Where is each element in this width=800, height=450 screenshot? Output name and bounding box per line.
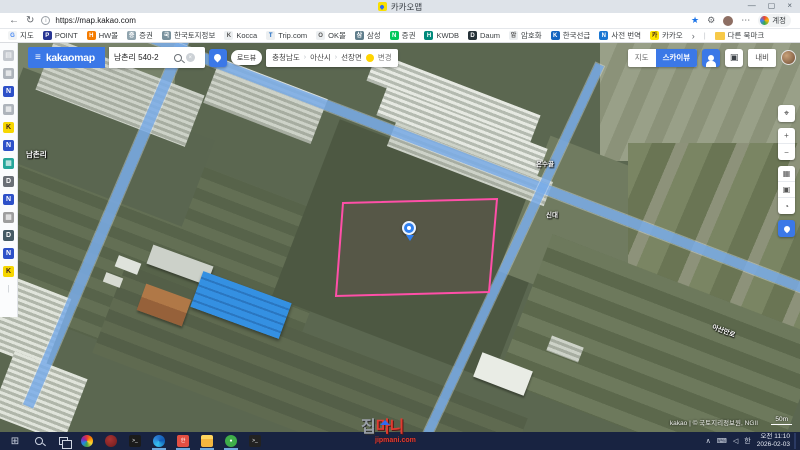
side-favicon[interactable]: K xyxy=(3,122,14,133)
bookmark-favicon: N xyxy=(390,31,399,40)
navi-button[interactable]: 내비 xyxy=(748,49,776,67)
kakaomap-favicon xyxy=(378,2,387,11)
bookmark-label: OK몰 xyxy=(328,30,346,41)
zoom-control: + − xyxy=(778,128,795,160)
clear-search-icon[interactable]: × xyxy=(186,53,195,62)
bookmark-item[interactable]: 카카카오 xyxy=(650,30,683,41)
taskbar-app-green[interactable]: ● xyxy=(220,432,242,450)
logo-text: kakaomap xyxy=(46,52,95,64)
theme-button[interactable]: ◔ xyxy=(778,198,795,214)
address-bar: ← ↻ i https://map.kakao.com ★ ⚙ ⋯ 계정 xyxy=(0,13,800,29)
bookmark-label: HW몰 xyxy=(99,30,118,41)
map-tool-column: ⌖ + − ▦ ▣ ◔ xyxy=(778,105,795,237)
bookmark-label: 사전 번역 xyxy=(611,30,641,41)
pin-icon xyxy=(782,224,790,232)
bookmark-label: 한국선급 xyxy=(563,30,591,41)
toggle-map[interactable]: 지도 xyxy=(628,49,656,67)
extensions-icon[interactable]: ⚙ xyxy=(707,15,715,26)
back-icon[interactable]: ← xyxy=(9,16,19,26)
bookmark-item[interactable]: TTrip.com xyxy=(266,31,307,40)
current-location-button[interactable]: ⌖ xyxy=(778,105,795,122)
zoom-in-button[interactable]: + xyxy=(778,128,795,144)
side-favicon[interactable]: N xyxy=(3,248,14,259)
task-view-button[interactable] xyxy=(52,432,74,450)
bookmark-favicon: N xyxy=(599,31,608,40)
bookmark-item[interactable]: N사전 번역 xyxy=(599,30,641,41)
other-bookmarks-label: 다른 북마크 xyxy=(728,30,765,41)
bookmark-label: 한국토지정보 xyxy=(174,30,215,41)
chevron-right-icon: › xyxy=(304,54,306,61)
bookmark-label: Daum xyxy=(480,31,500,40)
side-favicon[interactable]: ▦ xyxy=(3,68,14,79)
clock-time: 오전 11:10 xyxy=(757,433,790,441)
bookmark-favicon: T xyxy=(266,31,275,40)
taskbar-app-edge[interactable] xyxy=(148,432,170,450)
side-favicon[interactable]: ▦ xyxy=(3,158,14,169)
profile-chip-icon xyxy=(760,16,769,25)
bookmark-label: Trip.com xyxy=(278,31,307,40)
favorites-button[interactable]: ▣ xyxy=(725,49,743,67)
village-label: 남촌리 xyxy=(26,149,47,160)
taskbar-app-explorer[interactable] xyxy=(196,432,218,450)
bookmark-label: KWDB xyxy=(436,31,459,40)
breadcrumb-action[interactable]: 변경 xyxy=(378,52,392,63)
breadcrumb-part[interactable]: 충청남도 xyxy=(272,52,300,63)
taskbar-clock[interactable]: 오전 11:10 2026-02-03 xyxy=(757,433,796,449)
breadcrumb-part[interactable]: 선장면 xyxy=(341,52,362,63)
bookmark-favicon: K xyxy=(551,31,560,40)
bookmark-favicon: K xyxy=(224,31,233,40)
bookmark-favicon: G xyxy=(8,31,17,40)
profile-chip-label: 계정 xyxy=(772,15,786,26)
side-favicon[interactable]: D xyxy=(3,230,14,241)
bookmark-label: 증권 xyxy=(139,30,153,41)
marker-toggle-button[interactable] xyxy=(778,220,795,237)
jipmani-watermark: 집 마니 jipmani.com xyxy=(361,420,416,444)
kakaomap-logo[interactable]: ≡ kakaomap xyxy=(28,47,105,68)
close-button[interactable]: × xyxy=(787,1,792,10)
bookmarks-overflow-icon[interactable]: › xyxy=(692,31,695,41)
url-box[interactable]: i https://map.kakao.com xyxy=(41,16,684,25)
other-bookmarks[interactable]: 다른 북마크 xyxy=(715,30,765,41)
browser-titlebar: 카카오맵 — ▢ × xyxy=(0,0,800,13)
pin-icon xyxy=(213,53,223,63)
bookmark-favicon: H xyxy=(87,31,96,40)
watermark-site: jipmani.com xyxy=(375,437,416,444)
tray-speaker-icon[interactable]: ◁ xyxy=(733,437,738,445)
taskbar-app-terminal2[interactable]: >_ xyxy=(244,432,266,450)
side-favicon[interactable]: N xyxy=(3,194,14,205)
location-pin[interactable] xyxy=(402,221,416,235)
side-favicon[interactable]: N xyxy=(3,140,14,151)
url-text: https://map.kakao.com xyxy=(55,16,135,25)
refresh-icon[interactable]: ↻ xyxy=(26,16,34,26)
map-scale: 50m xyxy=(771,416,792,425)
side-favicon[interactable]: D xyxy=(3,176,14,187)
bookmark-favicon: 국 xyxy=(162,31,171,40)
user-avatar[interactable] xyxy=(781,50,796,65)
side-favicon[interactable]: K xyxy=(3,266,14,277)
toggle-skyview[interactable]: 스카이뷰 xyxy=(656,49,698,67)
bookmark-star-icon[interactable]: ★ xyxy=(691,15,699,26)
search-input[interactable] xyxy=(114,53,170,62)
pegman-icon xyxy=(708,55,714,61)
bookmark-item[interactable]: N증권 xyxy=(390,30,416,41)
bookmark-favicon: 암 xyxy=(509,31,518,40)
breadcrumb-part[interactable]: 아산시 xyxy=(310,52,331,63)
taskbar-app-hangul[interactable]: 한 xyxy=(172,432,194,450)
site-info-icon[interactable]: i xyxy=(41,16,50,25)
bookmark-item[interactable]: 암암호화 xyxy=(509,30,542,41)
bookmark-label: Kocca xyxy=(236,31,257,40)
bookmark-favicon: D xyxy=(468,31,477,40)
taskbar-app-darkred[interactable] xyxy=(100,432,122,450)
bookmark-item[interactable]: DDaum xyxy=(468,31,500,40)
bookmark-item[interactable]: PPOINT xyxy=(43,31,78,40)
profile-chip[interactable]: 계정 xyxy=(758,14,791,27)
bookmark-label: 삼성 xyxy=(367,30,381,41)
bookmark-item[interactable]: HKWDB xyxy=(424,31,459,40)
map-tools-group: ▦ ▣ ◔ xyxy=(778,166,795,214)
side-favicon[interactable]: N xyxy=(3,86,14,97)
bookmark-item[interactable]: 국한국토지정보 xyxy=(162,30,215,41)
cadastral-map-button[interactable]: ▦ xyxy=(778,166,795,182)
bookmark-item[interactable]: 증증권 xyxy=(127,30,153,41)
bookmark-label: 암호화 xyxy=(521,30,542,41)
bookmark-label: 카카오 xyxy=(662,30,683,41)
tip-bulb-icon xyxy=(366,54,374,62)
map-header: ≡ kakaomap × 로드뷰 충청남도 › 아산시 › 선장면 변경 지도 … xyxy=(28,47,796,68)
bookmark-tool-icon: ▣ xyxy=(730,53,739,62)
bookmarks-divider: | xyxy=(704,31,706,40)
clock-date: 2026-02-03 xyxy=(757,441,790,449)
side-favicon[interactable]: ▤ xyxy=(3,50,14,61)
tray-ime-indicator[interactable]: 한 xyxy=(744,436,750,446)
minimize-button[interactable]: — xyxy=(748,1,756,10)
tray-chevron-icon[interactable]: ∧ xyxy=(706,437,711,445)
bookmark-item[interactable]: OOK몰 xyxy=(316,30,346,41)
pin-tool-button[interactable] xyxy=(209,49,227,67)
side-favicon[interactable]: ▦ xyxy=(3,212,14,223)
maximize-button[interactable]: ▢ xyxy=(768,1,776,10)
bookmarks-bar: G지도 PPOINT HHW몰 증증권 국한국토지정보 KKocca TTrip… xyxy=(0,29,800,43)
chevron-right-icon: › xyxy=(335,54,337,61)
task-view-icon xyxy=(59,437,68,445)
bookmark-item[interactable]: KKocca xyxy=(224,31,257,40)
search-icon xyxy=(35,437,43,445)
bookmark-item[interactable]: 삼삼성 xyxy=(355,30,381,41)
taskbar-search-button[interactable] xyxy=(28,432,50,450)
roadview-chip[interactable]: 로드뷰 xyxy=(231,50,262,65)
taskbar-app-photos[interactable] xyxy=(76,432,98,450)
search-icon[interactable] xyxy=(174,54,182,62)
view-toggle: 지도 스카이뷰 xyxy=(628,49,697,67)
bookmark-favicon: H xyxy=(424,31,433,40)
bookmark-item[interactable]: K한국선급 xyxy=(551,30,591,41)
bookmark-label: POINT xyxy=(55,31,78,40)
start-button[interactable]: ⊞ xyxy=(4,432,26,450)
hamlet-label: 신대 xyxy=(546,209,558,219)
menu-icon[interactable]: ≡ xyxy=(35,53,41,63)
map-viewport[interactable]: 남촌리 온수골 신대 아산만로 kakao | © 국토지리정보원, NGII … xyxy=(0,43,800,432)
parcel-outline[interactable] xyxy=(0,43,800,432)
region-breadcrumb[interactable]: 충청남도 › 아산시 › 선장면 변경 xyxy=(266,49,398,67)
bookmark-favicon: 카 xyxy=(650,31,659,40)
account-avatar[interactable] xyxy=(723,16,733,26)
watermark-name: 마니 xyxy=(376,420,403,436)
roadview-pegman-button[interactable] xyxy=(702,49,720,67)
house-roof-icon xyxy=(380,415,390,425)
browser-side-favorites: ▤ ▦ N ▦ K N ▦ D N ▦ D N K | xyxy=(0,43,18,317)
browser-tab[interactable]: 카카오맵 xyxy=(378,1,422,13)
search-box[interactable]: × xyxy=(109,47,205,68)
browser-menu-icon[interactable]: ⋯ xyxy=(741,15,750,26)
bookmark-item[interactable]: HHW몰 xyxy=(87,30,118,41)
bookmark-favicon: O xyxy=(316,31,325,40)
measure-button[interactable]: ▣ xyxy=(778,182,795,198)
watermark-prefix: 집 xyxy=(361,420,376,436)
bookmark-favicon: P xyxy=(43,31,52,40)
tab-title-text: 카카오맵 xyxy=(391,1,422,13)
bookmark-favicon: 삼 xyxy=(355,31,364,40)
strip-handle[interactable]: | xyxy=(7,284,9,293)
side-favicon[interactable]: ▦ xyxy=(3,104,14,115)
taskbar-app-terminal[interactable]: >_ xyxy=(124,432,146,450)
bookmark-label: 증권 xyxy=(402,30,416,41)
tray-keyboard-icon[interactable]: ⌨ xyxy=(717,437,727,445)
bookmark-item[interactable]: G지도 xyxy=(8,30,34,41)
zoom-out-button[interactable]: − xyxy=(778,144,795,160)
bookmark-favicon: 증 xyxy=(127,31,136,40)
bookmark-label: 지도 xyxy=(20,30,34,41)
map-attribution: kakao | © 국토지리정보원, NGII xyxy=(670,417,758,427)
folder-icon xyxy=(715,32,725,40)
hamlet-label: 온수골 xyxy=(536,158,554,168)
